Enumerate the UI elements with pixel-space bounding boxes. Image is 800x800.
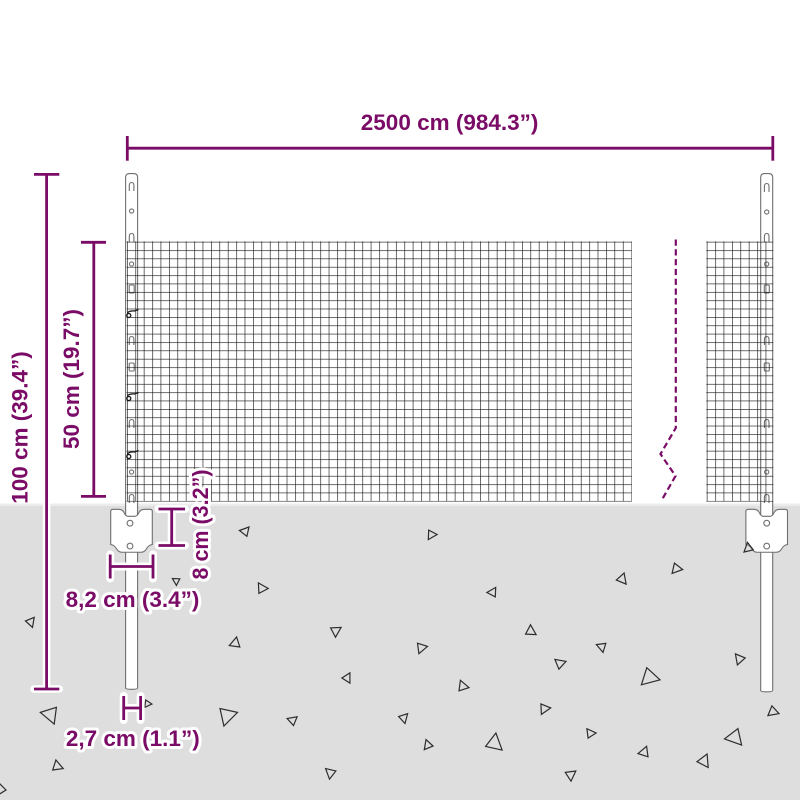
svg-text:8 cm (3.2”): 8 cm (3.2”) (188, 470, 213, 580)
svg-text:100 cm (39.4”): 100 cm (39.4”) (8, 351, 33, 504)
svg-text:2,7 cm (1.1”): 2,7 cm (1.1”) (66, 726, 200, 751)
svg-text:2500 cm (984.3”): 2500 cm (984.3”) (361, 110, 539, 135)
svg-text:8,2 cm (3.4”): 8,2 cm (3.4”) (66, 587, 200, 612)
svg-text:50 cm (19.7”): 50 cm (19.7”) (59, 309, 84, 449)
